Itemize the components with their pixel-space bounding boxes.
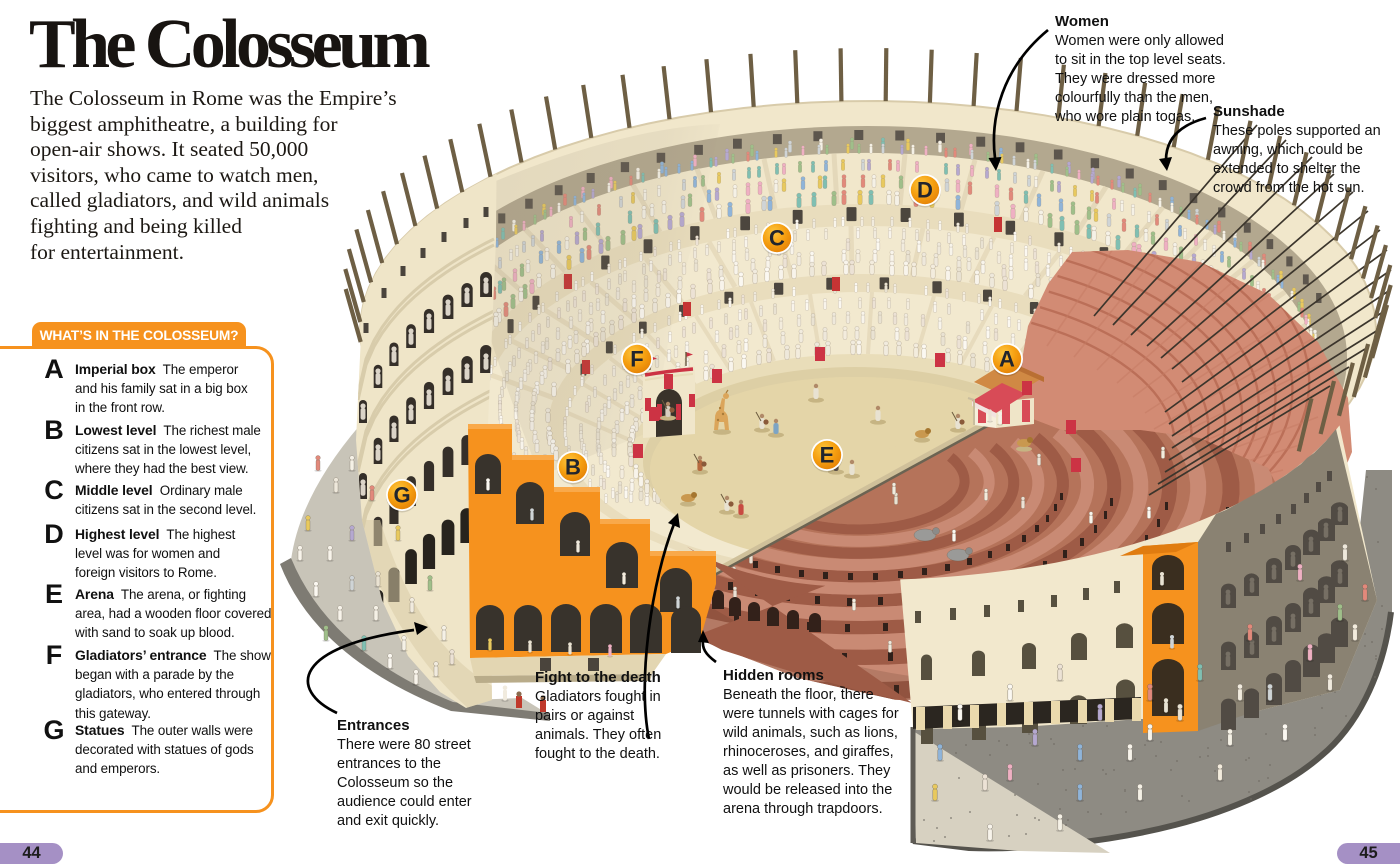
svg-text:C: C	[769, 226, 785, 251]
svg-text:D: D	[917, 178, 933, 203]
svg-text:A: A	[999, 347, 1015, 372]
svg-text:B: B	[565, 455, 581, 480]
svg-text:E: E	[820, 443, 835, 468]
svg-text:F: F	[630, 347, 643, 372]
svg-text:G: G	[393, 483, 410, 508]
